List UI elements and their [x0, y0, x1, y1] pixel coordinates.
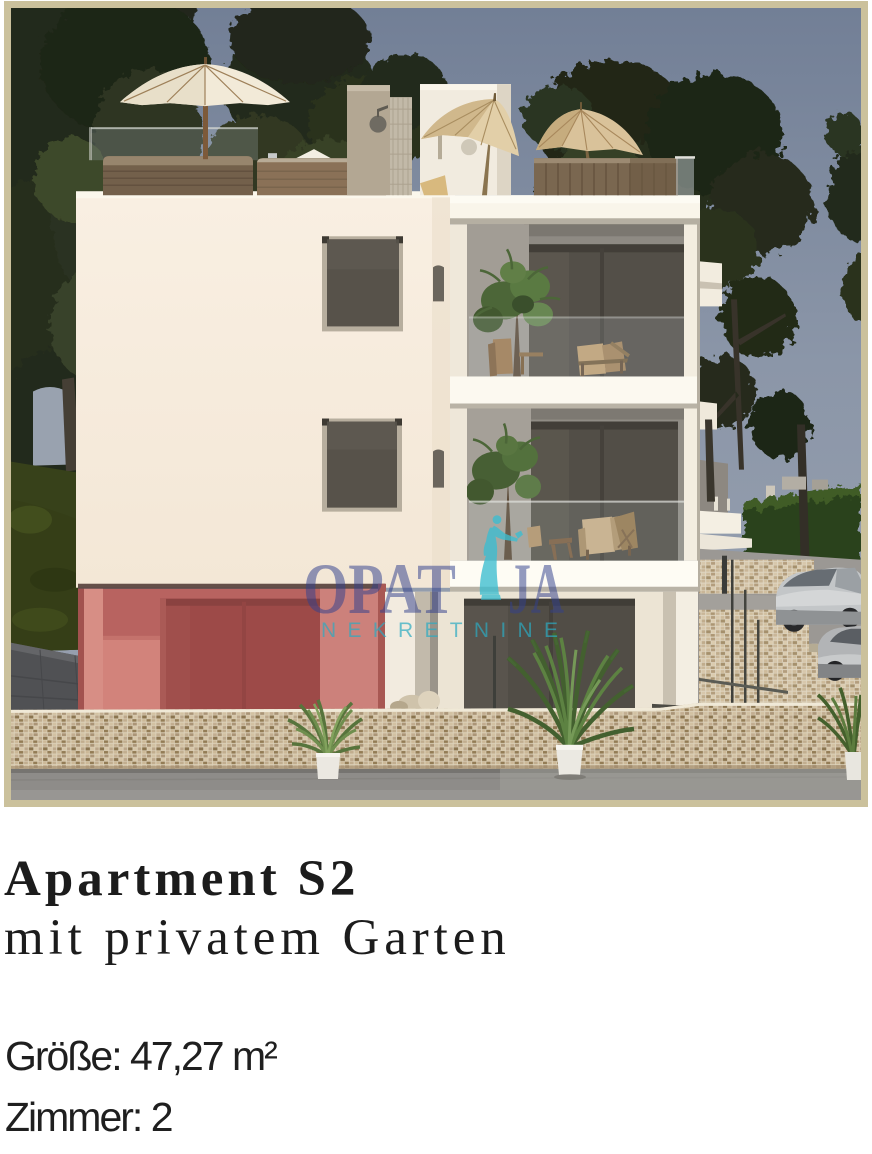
svg-text:OPAT: OPAT: [303, 549, 456, 629]
svg-text:JA: JA: [508, 549, 564, 629]
